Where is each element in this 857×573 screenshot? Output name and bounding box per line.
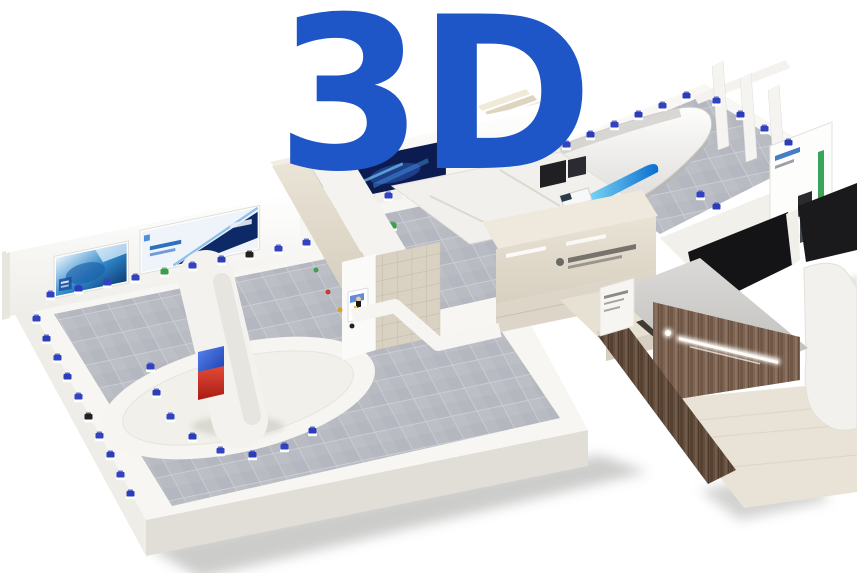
scene-canvas: 3D — [0, 0, 857, 573]
logo-3d: 3D — [276, 0, 588, 218]
entrance-logo-icon — [665, 330, 671, 336]
wall-end-cap — [2, 250, 10, 320]
logo-3d-text: 3D — [276, 0, 588, 218]
entrance-info-panel — [600, 278, 634, 336]
tower-screen-red — [198, 366, 224, 400]
curved-white-wall — [804, 263, 857, 430]
company-logo-icon — [556, 258, 564, 266]
exhibition-3d-overview[interactable]: 3D — [0, 0, 857, 573]
